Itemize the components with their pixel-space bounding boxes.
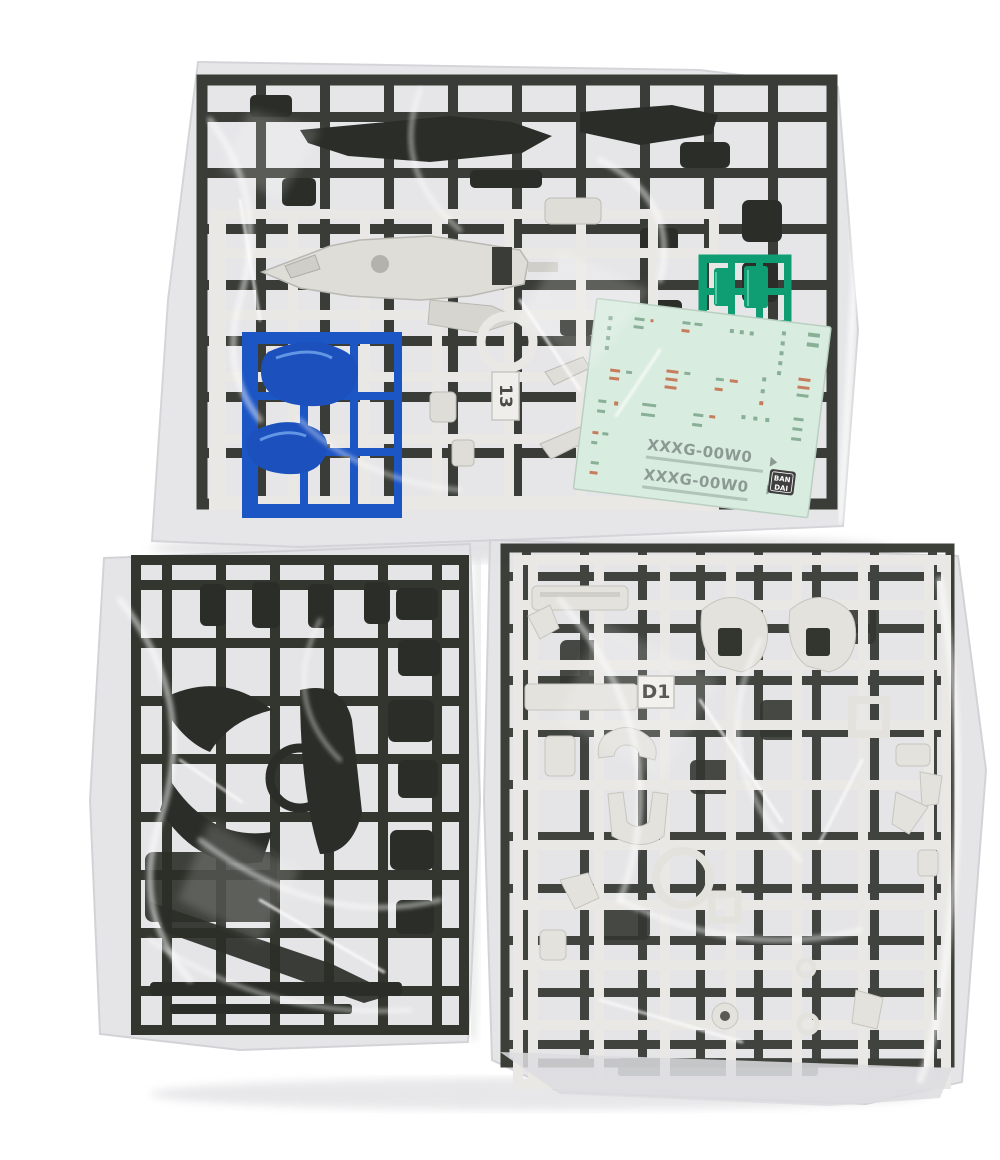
top-bag: 13 — [152, 62, 858, 547]
bottom-right-bag: D1 — [484, 540, 986, 1106]
bandai-logo: BAN DAI — [767, 469, 796, 496]
bottom-left-bag — [90, 544, 480, 1050]
runner-tag-13-label: 13 — [495, 384, 515, 408]
clear-blue-runner — [246, 336, 398, 514]
bottom-right-white-runner: D1 — [518, 560, 946, 1084]
product-photo: 13 — [0, 0, 1000, 1160]
runner-tag-13: 13 — [492, 372, 519, 420]
photo-scene: 13 — [0, 0, 1000, 1160]
bandai-logo-line2: DAI — [774, 483, 789, 493]
